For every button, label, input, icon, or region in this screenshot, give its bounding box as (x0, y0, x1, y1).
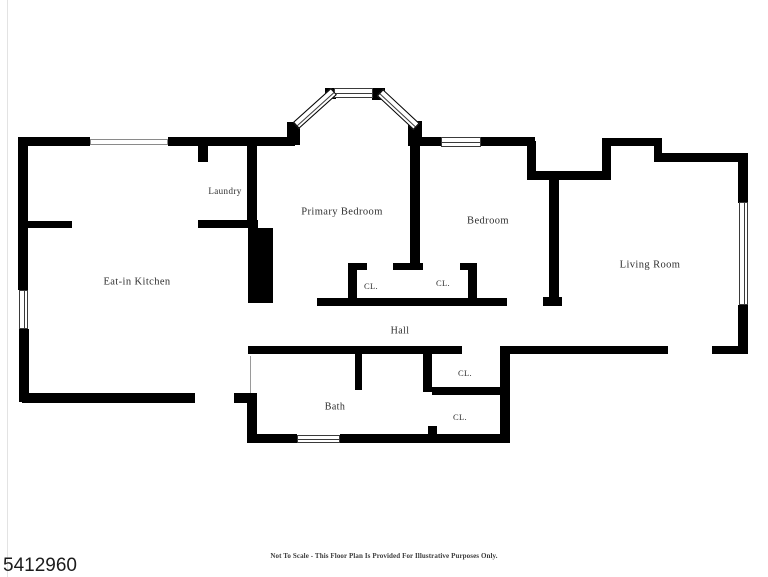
wall-kitchen-left-lower (19, 329, 29, 402)
room-label-bedroom: Bedroom (467, 216, 509, 227)
bedroom-window (441, 137, 481, 147)
wall-bath-bottom-left (247, 434, 297, 443)
wall-closet-bedroom-right (468, 263, 477, 302)
wall-notch-bottom (527, 171, 611, 180)
wall-bath-interior-stub (355, 350, 362, 390)
wall-bath-left-stub (234, 393, 248, 403)
wall-closet-bath-left-stub (428, 426, 437, 438)
bay-window-left (293, 88, 337, 129)
bath-door-line (250, 356, 251, 395)
wall-kitchen-top-right (168, 137, 295, 146)
room-label-bath: Bath (325, 402, 346, 413)
wall-livingroom-right-upper (738, 153, 748, 203)
wall-livingroom-top-right (654, 153, 747, 162)
wall-laundry-left-stub (198, 146, 208, 162)
room-label-living-room: Living Room (620, 260, 681, 271)
livingroom-window (739, 202, 748, 305)
bay-window-right (377, 89, 420, 130)
floor-plan: Eat-in Kitchen Laundry Primary Bedroom B… (0, 0, 768, 577)
wall-kitchen-counter-stub (28, 221, 72, 228)
wall-kitchen-top-left (18, 137, 90, 146)
bay-window-center (334, 88, 373, 98)
room-label-closet-primary: CL. (364, 281, 378, 291)
kitchen-left-window (19, 290, 28, 329)
kitchen-top-window (90, 139, 168, 145)
wall-laundry-right (247, 137, 257, 228)
room-label-closet-bath: CL. (453, 412, 467, 422)
room-label-closet-bedroom: CL. (436, 278, 450, 288)
left-border-line (7, 0, 8, 577)
listing-id: 5412960 (3, 555, 77, 577)
wall-bottom-middle (500, 346, 668, 354)
wall-hall-north (317, 298, 507, 306)
wall-closet-hall-left (423, 350, 432, 392)
wall-livingroom-top-left (602, 138, 662, 146)
wall-bedroom-top-left (416, 137, 442, 146)
wall-bottom-right (712, 346, 748, 354)
room-label-hall: Hall (391, 326, 410, 337)
wall-solid-block (248, 228, 273, 303)
wall-livingroom-left-foot (543, 297, 562, 306)
wall-closet-divider (432, 387, 503, 395)
disclaimer-text: Not To Scale - This Floor Plan Is Provid… (270, 552, 497, 560)
wall-closet-center-post (393, 263, 423, 270)
wall-livingroom-left (549, 176, 559, 306)
room-label-closet-hall: CL. (458, 368, 472, 378)
bath-window (297, 435, 340, 443)
wall-kitchen-bottom (22, 393, 195, 403)
wall-bedroom-divider (410, 125, 420, 265)
wall-closet-primary-top (348, 263, 367, 270)
room-label-primary-bedroom: Primary Bedroom (301, 207, 383, 218)
wall-kitchen-left-upper (18, 137, 28, 290)
wall-closet-right (500, 346, 510, 443)
room-label-kitchen: Eat-in Kitchen (103, 277, 170, 288)
room-label-laundry: Laundry (208, 186, 241, 196)
wall-bath-bottom-right (340, 434, 510, 443)
